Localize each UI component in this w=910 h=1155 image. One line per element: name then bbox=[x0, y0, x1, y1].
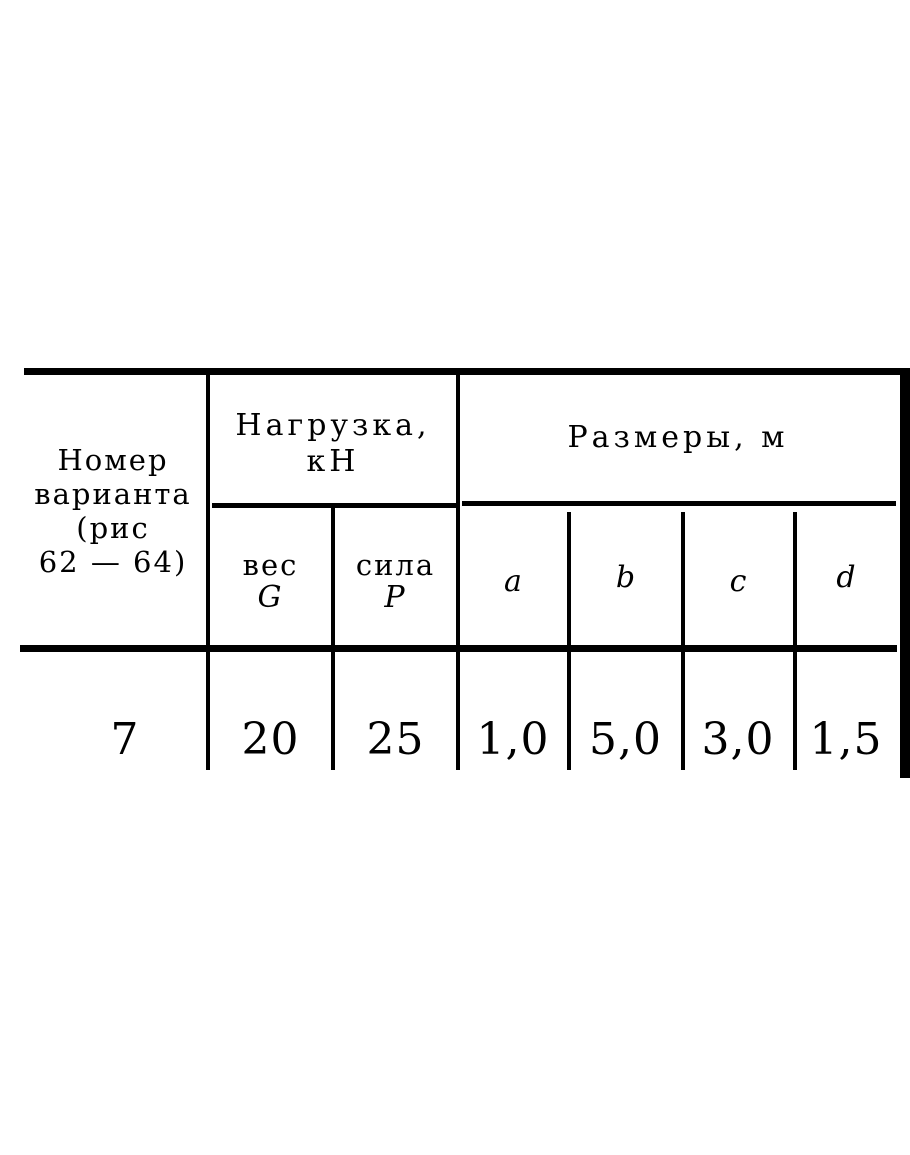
dimension-a-header: a bbox=[458, 566, 568, 598]
dimension-b-header: b bbox=[570, 562, 681, 594]
load-group-header: Нагрузка, кН bbox=[210, 408, 456, 480]
data-cell-weight-g: 20 bbox=[210, 714, 331, 766]
scanned-page: Номер варианта (рис 62 — 64) Нагрузка, к… bbox=[0, 0, 910, 1155]
data-table: Номер варианта (рис 62 — 64) Нагрузка, к… bbox=[0, 0, 910, 1155]
weight-symbol: G bbox=[210, 582, 331, 614]
force-label: сила bbox=[335, 548, 456, 582]
load-subheader-rule bbox=[212, 503, 458, 508]
data-cell-variant: 7 bbox=[30, 714, 220, 766]
data-cell-d: 1,5 bbox=[795, 714, 897, 766]
variant-header-cell: Номер варианта (рис 62 — 64) bbox=[20, 443, 206, 579]
table-top-rule bbox=[24, 368, 910, 375]
data-cell-b: 5,0 bbox=[570, 714, 681, 766]
variant-header-line2: варианта bbox=[20, 477, 206, 511]
variant-header-line4: 62 — 64) bbox=[20, 545, 206, 579]
force-subheader-cell: сила Р bbox=[335, 548, 456, 614]
variant-header-line1: Номер bbox=[20, 443, 206, 477]
dimensions-subheader-rule bbox=[462, 501, 896, 506]
variant-header-line3: (рис bbox=[20, 511, 206, 545]
dimensions-group-header: Размеры, м bbox=[460, 420, 896, 456]
dimension-c-header: c bbox=[683, 566, 793, 598]
data-cell-c: 3,0 bbox=[683, 714, 793, 766]
data-cell-a: 1,0 bbox=[458, 714, 568, 766]
weight-subheader-cell: вес G bbox=[210, 548, 331, 614]
load-group-title-line2: кН bbox=[210, 444, 456, 480]
weight-label: вес bbox=[210, 548, 331, 582]
force-symbol: Р bbox=[335, 582, 456, 614]
table-right-border bbox=[900, 374, 910, 778]
data-cell-force-p: 25 bbox=[335, 714, 456, 766]
dimension-d-header: d bbox=[795, 562, 897, 594]
load-group-title-line1: Нагрузка, bbox=[210, 408, 456, 444]
